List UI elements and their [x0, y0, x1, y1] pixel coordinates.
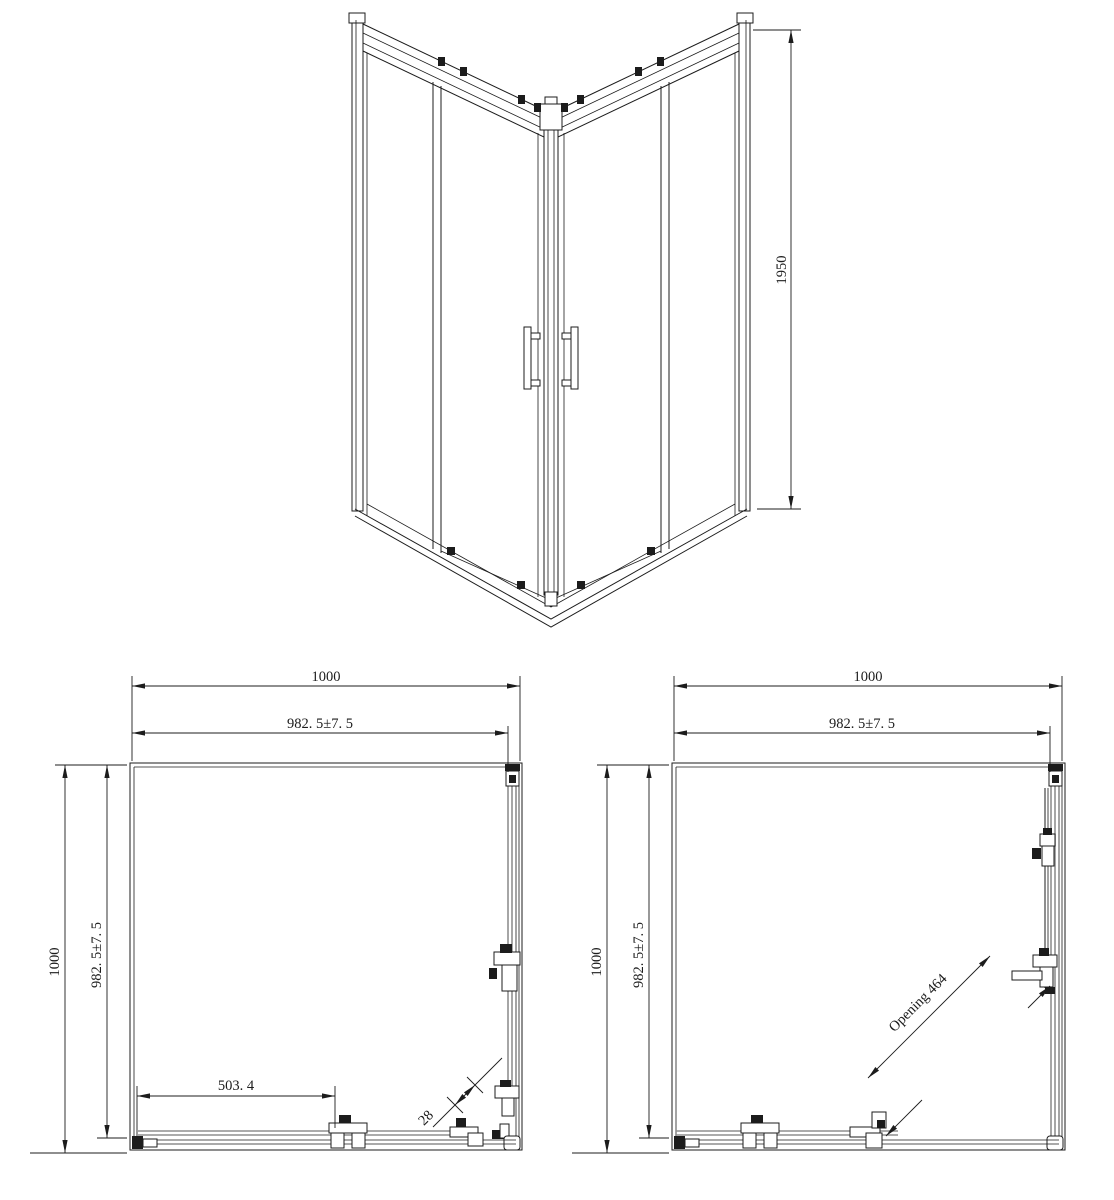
open-width-dimensions: 1000 982. 5±7. 5: [674, 669, 1062, 772]
dim-open-outer-depth: 1000: [589, 948, 605, 977]
technical-drawing-canvas: 1950: [0, 0, 1114, 1200]
height-dimension: 1950: [753, 30, 801, 509]
plan-view-closed: 1000 982. 5±7. 5 1000 982. 5±7. 5 503. 4: [30, 669, 522, 1153]
dim-height-label: 1950: [774, 256, 790, 285]
open-depth-dimensions: 1000 982. 5±7. 5: [572, 765, 669, 1153]
dim-closed-glass-width: 982. 5±7. 5: [287, 716, 353, 732]
tray-outline: [130, 763, 522, 1150]
closed-depth-dimensions: 1000 982. 5±7. 5: [30, 765, 127, 1153]
closed-width-dimensions: 1000 982. 5±7. 5: [132, 669, 520, 772]
dim-closed-outer-depth: 1000: [47, 948, 63, 977]
corner-post: [540, 97, 562, 595]
tray-outline-open: [672, 763, 1065, 1150]
plan-view-open: 1000 982. 5±7. 5 1000 982. 5±7. 5 Openin…: [572, 669, 1065, 1153]
drawing-sheet: 1950: [0, 0, 1114, 1200]
dim-closed-glass-depth: 982. 5±7. 5: [89, 922, 105, 988]
dim-open-glass-depth: 982. 5±7. 5: [631, 922, 647, 988]
dim-open-outer-width: 1000: [854, 669, 883, 685]
dim-open-glass-width: 982. 5±7. 5: [829, 716, 895, 732]
front-view: 1950: [349, 13, 801, 627]
dim-closed-outer-width: 1000: [312, 669, 341, 685]
dim-door-width: 503. 4: [218, 1078, 255, 1094]
